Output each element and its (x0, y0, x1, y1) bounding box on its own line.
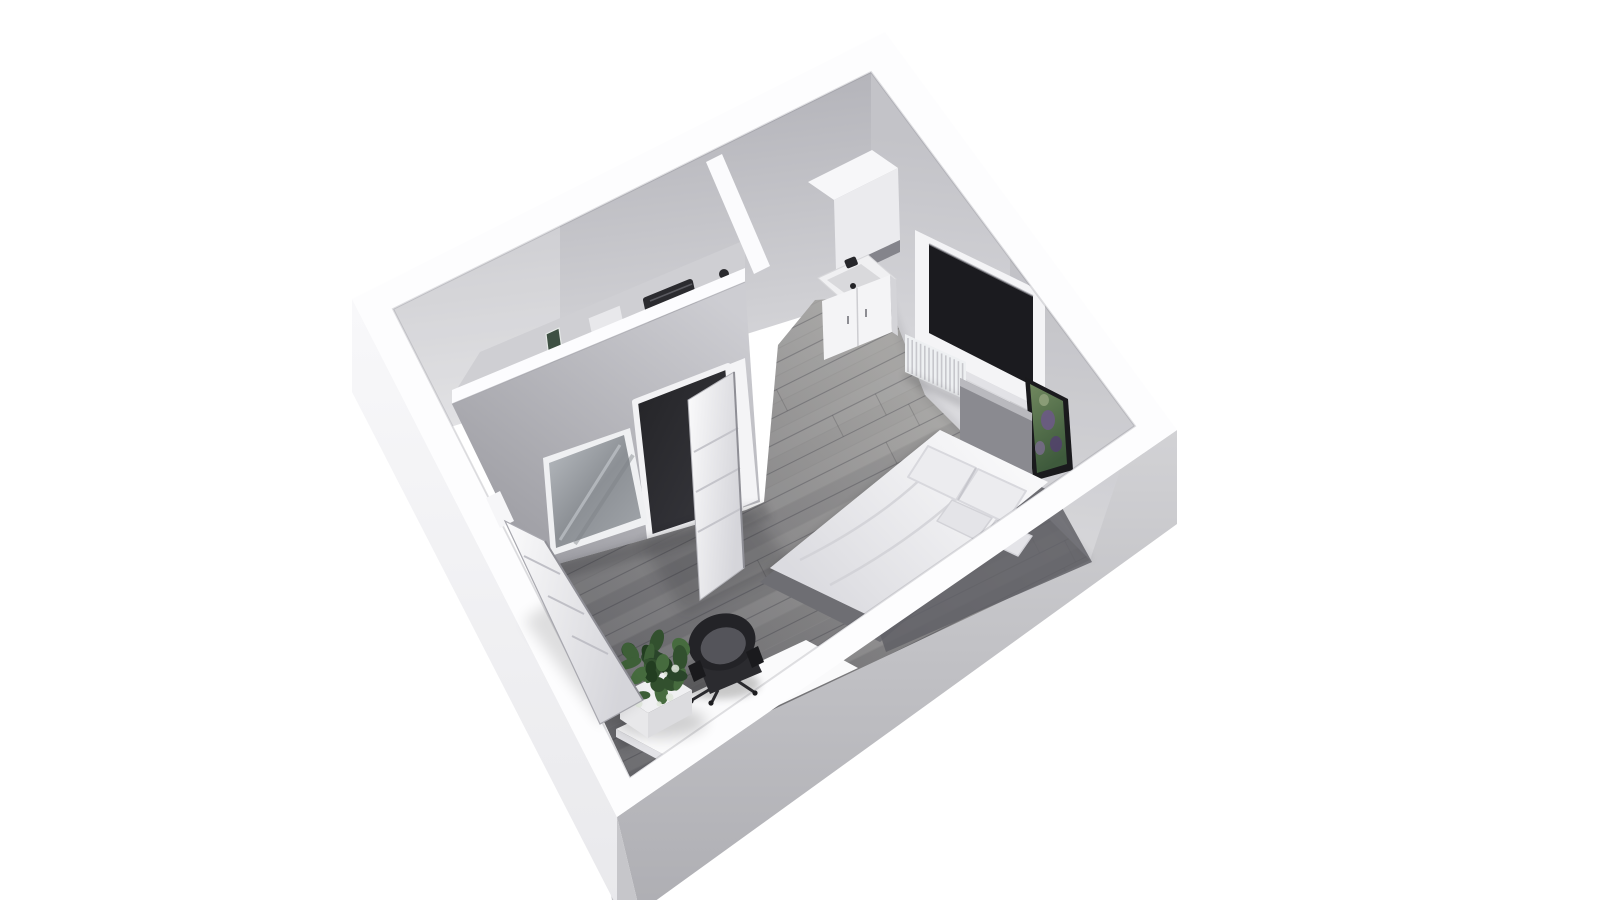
painting-flower-dark (1050, 436, 1062, 452)
floor-plank-joint (1213, 654, 1224, 675)
floor-plank-joint (494, 772, 505, 793)
sink-cabinet-door-split (857, 288, 858, 346)
painting-flower-lilac (1035, 441, 1045, 455)
floor-plank-joint (996, 682, 1007, 703)
floor-plank-joint (1052, 198, 1063, 219)
floorplan-render: 3D rendered floor plan of a studio apart… (0, 0, 1600, 900)
floor-plank-joint (317, 431, 328, 452)
floor-plank-joint (787, 841, 798, 862)
floor-plank-joint (331, 559, 342, 580)
floor-plank-joint (325, 535, 336, 556)
floor-plank-joint (1064, 702, 1075, 723)
scene-svg (0, 0, 1600, 900)
floor-plank-joint (451, 820, 462, 841)
plant-highlight-speck (664, 672, 668, 676)
painting-leaf-light (1039, 394, 1049, 406)
floor-plank-joint (403, 710, 414, 731)
sink-drain (850, 283, 856, 289)
plant-highlight-speck (667, 694, 671, 698)
floor-plank-joint (977, 128, 988, 149)
floor-plank-joint (322, 536, 333, 557)
floor-plank-joint (352, 495, 363, 516)
chair-caster (708, 700, 713, 705)
floor-plank-joint (1049, 709, 1060, 730)
floor-plank-joint (379, 615, 390, 636)
floor-plank-joint (527, 756, 538, 777)
plant-highlight-speck (656, 701, 661, 706)
floor-plank-joint (1047, 684, 1058, 705)
floor-plank-joint (321, 564, 332, 585)
plant-highlight-speck (671, 665, 679, 673)
floor-plank-joint (386, 719, 397, 740)
floor-plank-joint (352, 468, 363, 489)
floor-plank-joint (975, 720, 986, 741)
chair-caster (752, 690, 757, 695)
floor-plank-joint (782, 870, 793, 891)
painting-flower-purple (1041, 410, 1055, 430)
floor-plank-joint (358, 599, 369, 620)
